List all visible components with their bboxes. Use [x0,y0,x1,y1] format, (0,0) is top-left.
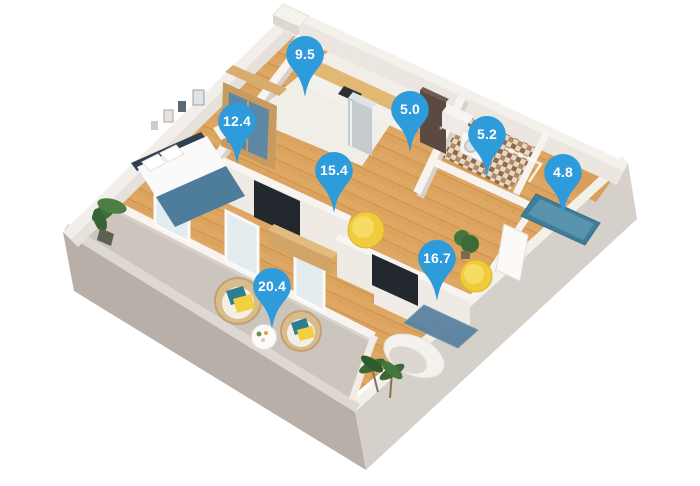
armchair-bedroom2-cushion [464,264,484,284]
wall-picture-4 [151,121,158,130]
area-pin-balcony[interactable]: 20.4 [252,267,292,331]
area-pin-bedroom-2[interactable]: 16.7 [417,239,457,303]
area-value: 12.4 [217,102,257,140]
table-decor-1 [257,332,262,337]
table-decor-2 [264,331,268,335]
floorplan-illustration [0,0,700,486]
area-pin-bathroom[interactable]: 5.2 [467,115,507,179]
wall-picture-1 [193,90,204,105]
area-value: 15.4 [314,151,354,189]
area-pin-hallway[interactable]: 5.0 [390,90,430,154]
table-decor-3 [261,338,265,342]
armchair-living-cushion [352,216,374,238]
area-pin-bathroom-2[interactable]: 4.8 [543,153,583,217]
area-pin-kitchen[interactable]: 9.5 [285,35,325,99]
floor-plan-canvas: 9.5 12.4 5.0 15.4 5.2 4.8 16.7 20.4 [0,0,700,486]
wall-picture-2 [178,101,186,112]
plant-pot-bedroom2 [461,251,470,259]
area-value: 5.0 [390,90,430,128]
wall-picture-3 [164,110,173,122]
area-value: 16.7 [417,239,457,277]
area-pin-bedroom[interactable]: 12.4 [217,102,257,166]
area-value: 9.5 [285,35,325,73]
area-value: 20.4 [252,267,292,305]
potted-plant-bedroom2-b [461,235,479,253]
area-value: 4.8 [543,153,583,191]
area-value: 5.2 [467,115,507,153]
area-pin-living-room[interactable]: 15.4 [314,151,354,215]
